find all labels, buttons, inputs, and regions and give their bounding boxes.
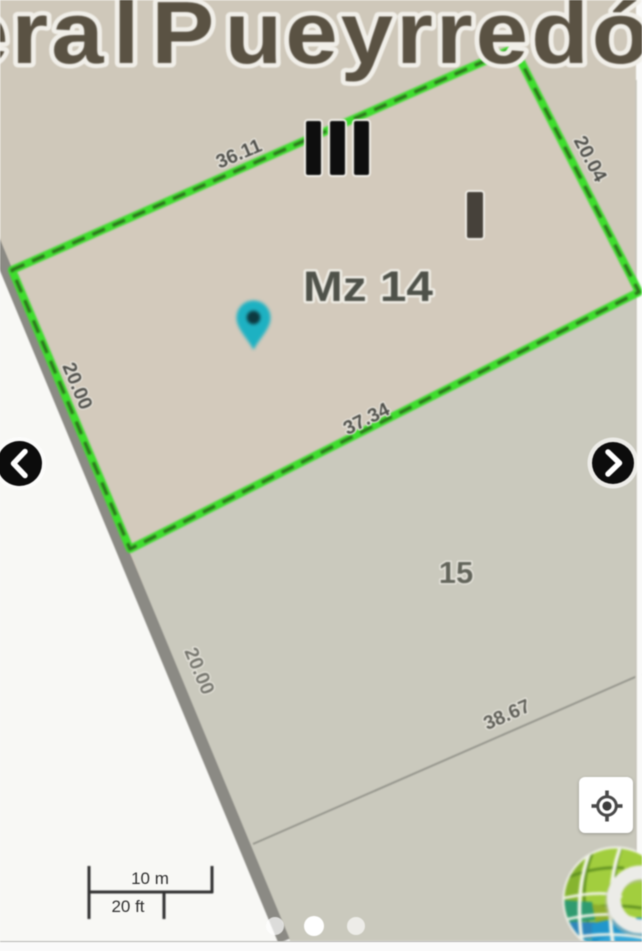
svg-text:15: 15 (439, 555, 473, 590)
svg-text:20 ft: 20 ft (111, 897, 144, 916)
svg-text:Mz 14: Mz 14 (303, 262, 434, 310)
svg-text:eral Pueyrredón: eral Pueyrredón (0, 0, 642, 82)
svg-text:10 m: 10 m (131, 869, 169, 888)
